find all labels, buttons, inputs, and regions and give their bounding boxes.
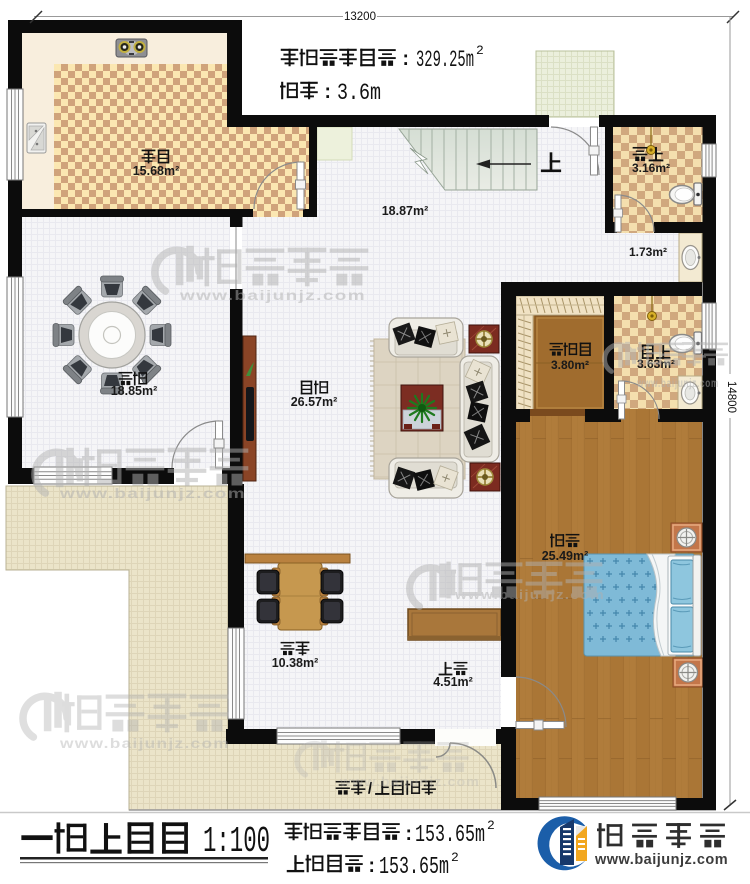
- svg-text:26.57m²: 26.57m²: [291, 395, 338, 409]
- svg-text::: :: [403, 824, 414, 846]
- svg-text:10.38m²: 10.38m²: [272, 656, 319, 670]
- svg-text:13200: 13200: [344, 11, 376, 23]
- svg-text:14800: 14800: [725, 381, 737, 413]
- svg-text:www.baijunjz.com: www.baijunjz.com: [636, 376, 719, 390]
- svg-text::: :: [400, 49, 411, 71]
- svg-text:2: 2: [476, 43, 484, 58]
- svg-text::: :: [366, 856, 377, 878]
- svg-text:4.51m²: 4.51m²: [433, 675, 473, 689]
- svg-text:25.49m²: 25.49m²: [542, 549, 589, 563]
- svg-text:www.baijunjz.com: www.baijunjz.com: [339, 774, 480, 789]
- svg-text:3.80m²: 3.80m²: [551, 358, 589, 372]
- svg-text:153.65m: 153.65m: [415, 822, 485, 849]
- svg-text::: :: [322, 82, 333, 104]
- svg-text:329.25m: 329.25m: [416, 47, 474, 73]
- svg-text:www.baijunjz.com: www.baijunjz.com: [454, 587, 605, 602]
- svg-text:2: 2: [451, 850, 459, 865]
- svg-text:www.baijunjz.com: www.baijunjz.com: [59, 736, 230, 751]
- svg-text:15.68m²: 15.68m²: [133, 164, 180, 178]
- svg-text:1.73m²: 1.73m²: [629, 245, 667, 259]
- svg-text:www.baijunjz.com: www.baijunjz.com: [179, 288, 366, 303]
- svg-text:www.baijunjz.com: www.baijunjz.com: [59, 486, 246, 501]
- svg-text:3.16m²: 3.16m²: [632, 161, 670, 175]
- svg-text:18.87m²: 18.87m²: [382, 204, 429, 218]
- svg-text:2: 2: [487, 818, 495, 833]
- svg-text:18.85m²: 18.85m²: [111, 384, 158, 398]
- svg-text:www.baijunjz.com: www.baijunjz.com: [594, 852, 728, 868]
- svg-text:3.6m: 3.6m: [337, 80, 381, 106]
- svg-text:153.65m: 153.65m: [379, 854, 449, 881]
- svg-text:1:100: 1:100: [203, 821, 270, 862]
